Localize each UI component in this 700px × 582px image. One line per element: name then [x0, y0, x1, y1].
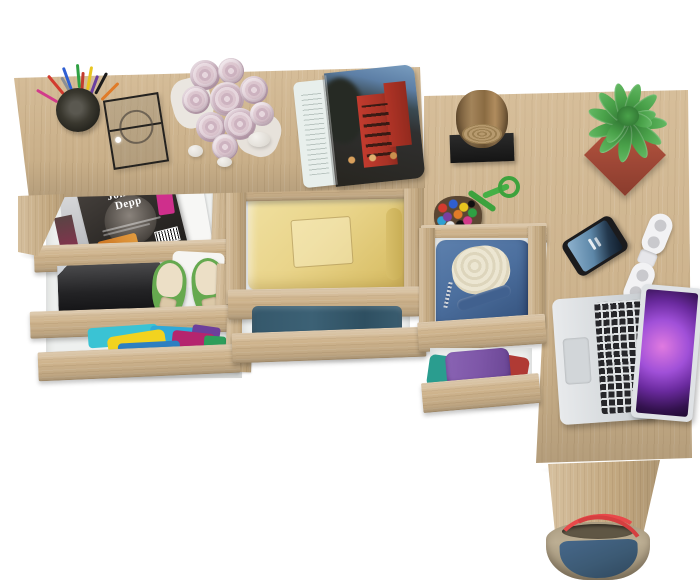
magazine-photo-page — [324, 64, 425, 187]
rose — [218, 58, 244, 84]
shirt-rolled-edge — [386, 208, 402, 280]
insole — [155, 262, 183, 298]
drawer-side-rail — [419, 228, 435, 330]
tote-bag — [546, 514, 654, 582]
display-case — [103, 92, 169, 170]
rose — [240, 76, 268, 104]
pebble — [188, 145, 203, 157]
keychain-loop — [498, 176, 520, 198]
drawer-side-rail — [226, 184, 246, 304]
speaker-grille — [635, 268, 651, 284]
building-windows — [362, 103, 393, 157]
jacket-zipper — [443, 282, 452, 308]
folded-yellow-shirt — [248, 196, 406, 290]
box-corner — [57, 266, 67, 276]
laptop-screen — [630, 284, 700, 423]
plant-center — [617, 106, 639, 126]
case-sparkle — [115, 136, 122, 143]
mesh-cup — [56, 88, 100, 132]
magazine-badge — [156, 191, 175, 215]
pebble — [217, 157, 232, 167]
speaker-grille — [646, 235, 662, 251]
rose — [250, 102, 274, 126]
open-magazine — [292, 64, 428, 194]
rose — [182, 86, 210, 114]
potted-plant — [585, 70, 675, 180]
laptop-trackpad — [562, 337, 591, 385]
scene: Johnny Depp — [0, 0, 700, 582]
pebble — [248, 132, 270, 147]
shirt-pocket — [290, 216, 353, 268]
laptop-wallpaper — [636, 289, 699, 417]
stump-end-grain — [462, 124, 502, 144]
eyeglasses-in-case — [117, 107, 156, 146]
speaker-grille — [653, 218, 669, 234]
